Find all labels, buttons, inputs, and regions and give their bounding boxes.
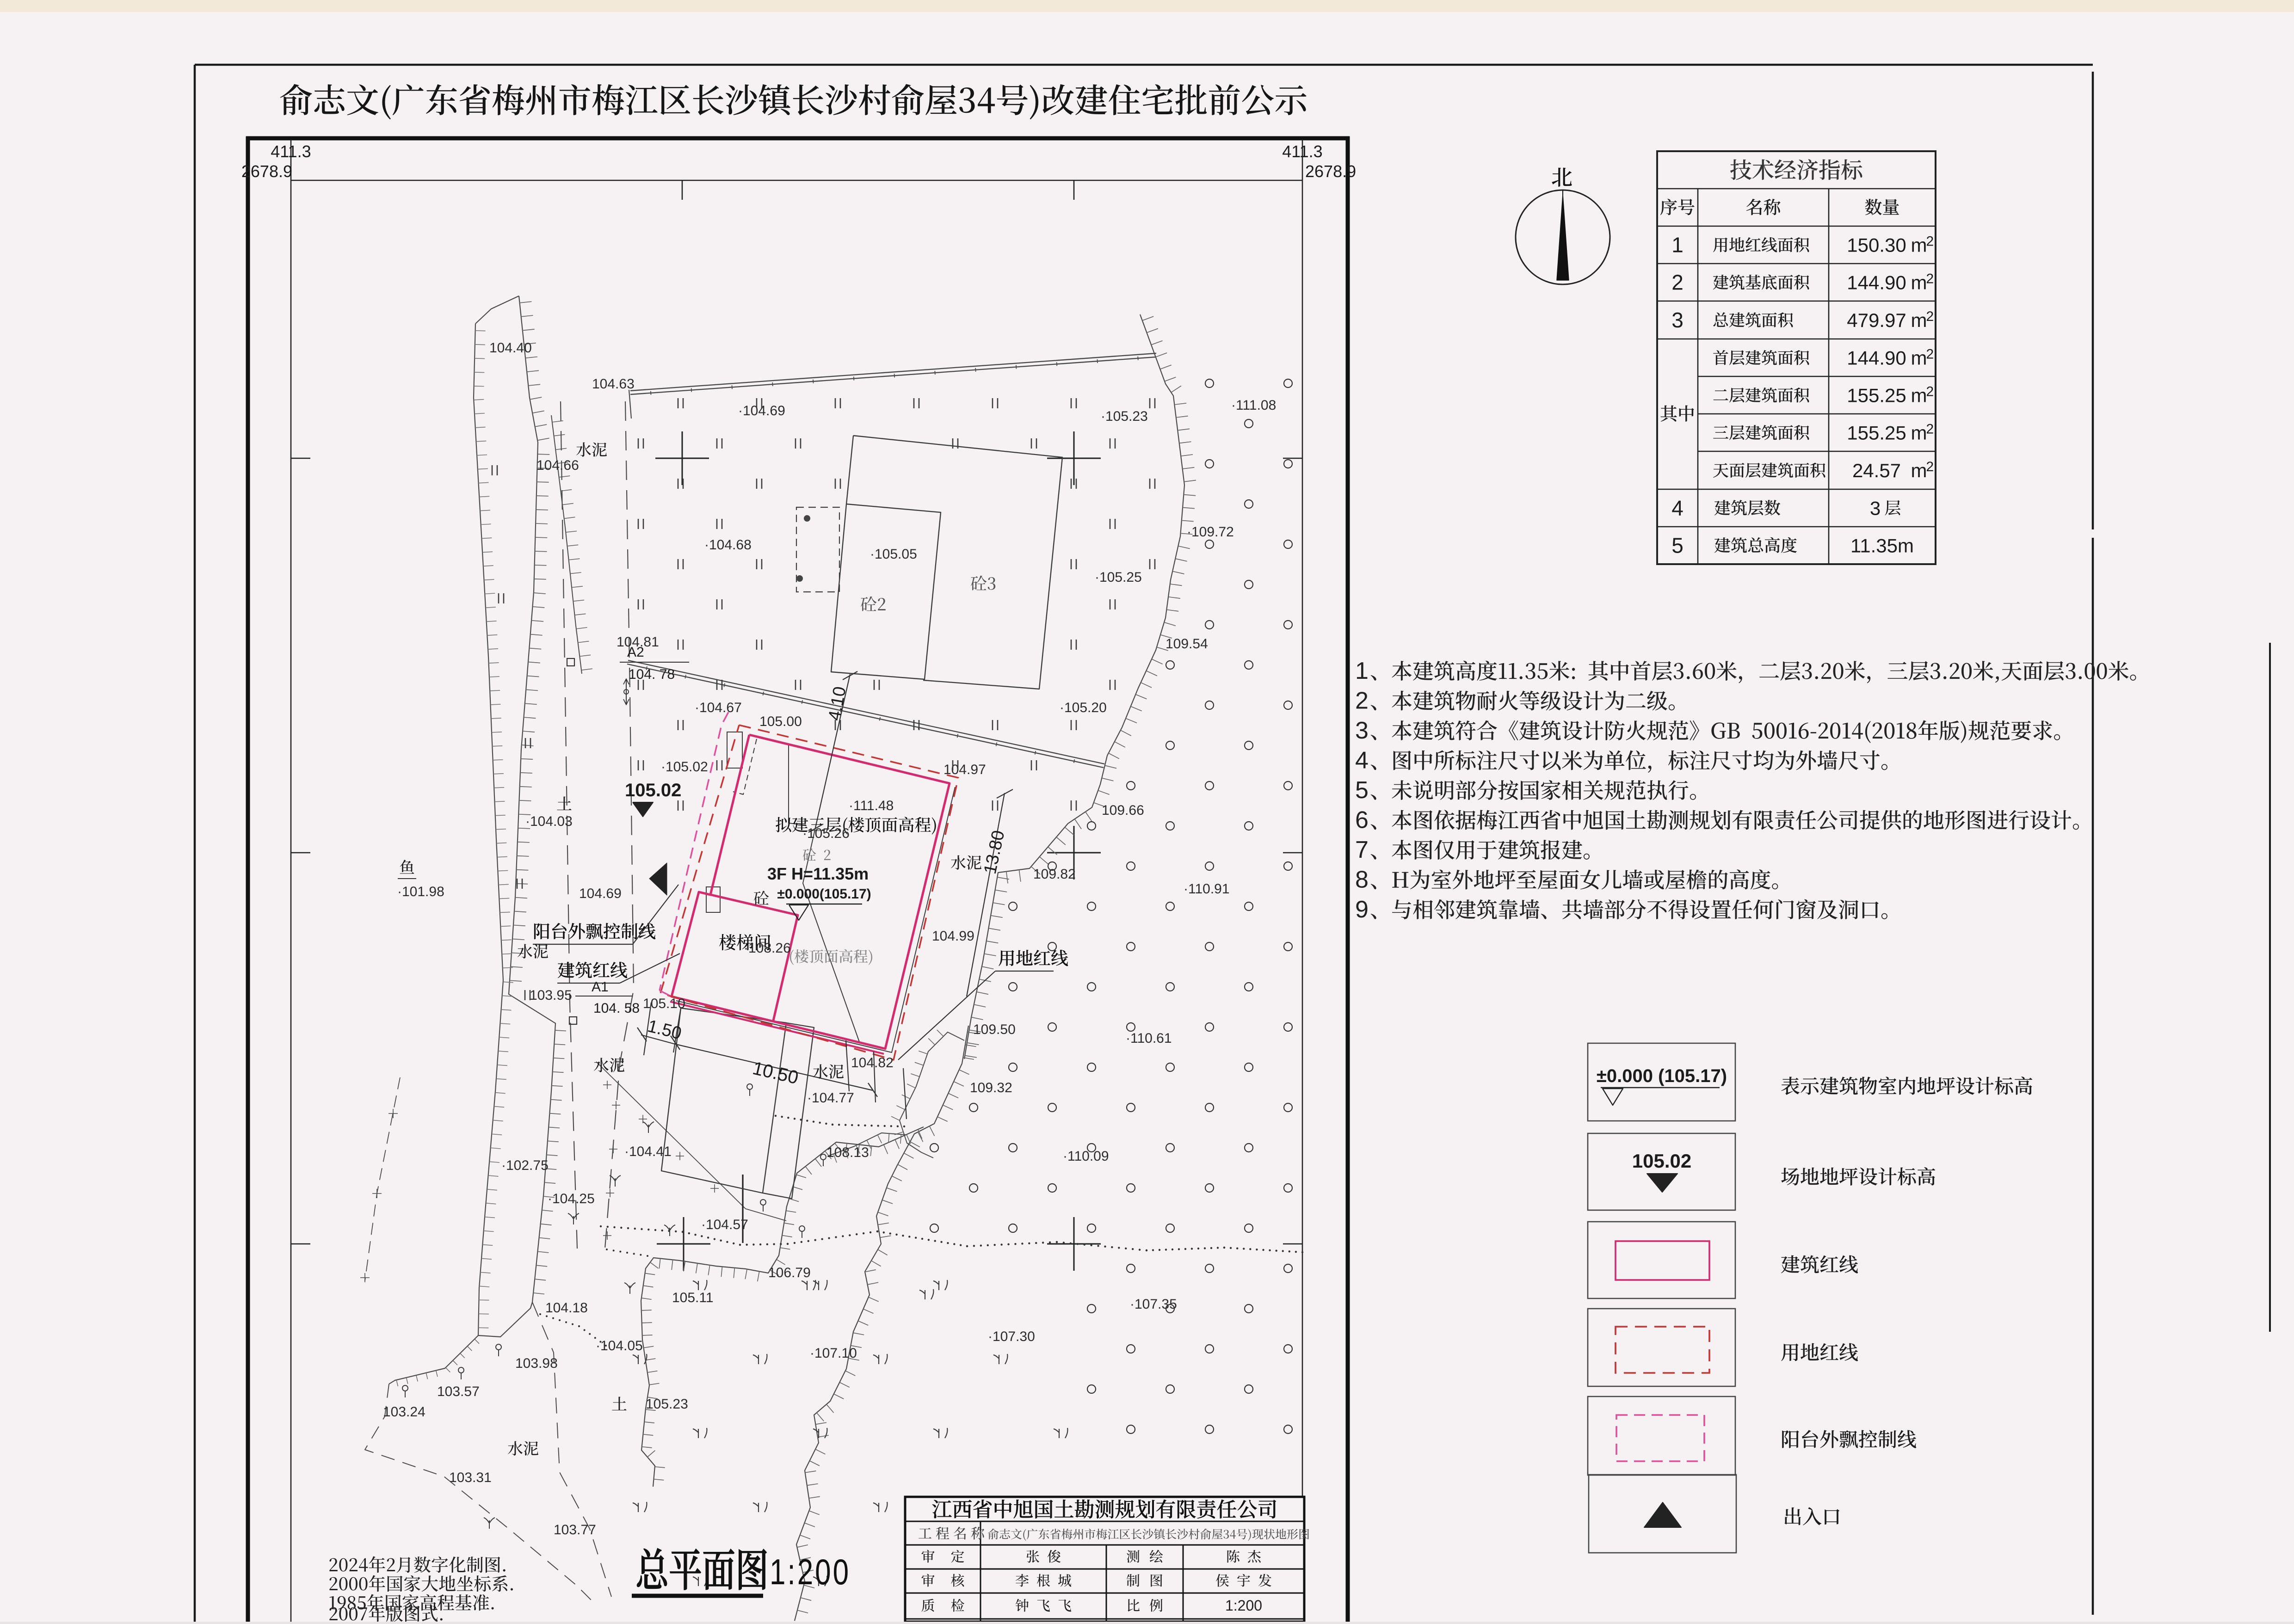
svg-text:105.11: 105.11 <box>672 1290 714 1305</box>
svg-text:±0.000(105.17): ±0.000(105.17) <box>777 886 871 902</box>
svg-text:2: 2 <box>1926 309 1934 324</box>
svg-text:·111.08: ·111.08 <box>1231 398 1276 413</box>
svg-text:m: m <box>1911 460 1927 481</box>
svg-text:105.02: 105.02 <box>625 780 681 800</box>
svg-text:2: 2 <box>1926 422 1934 437</box>
svg-text:m: m <box>1911 309 1927 331</box>
svg-text:·111.48: ·111.48 <box>849 798 894 813</box>
svg-text:105.00: 105.00 <box>759 714 802 729</box>
svg-text:5: 5 <box>1671 534 1683 558</box>
svg-text:·110.91: ·110.91 <box>1184 881 1230 897</box>
svg-text:2: 2 <box>1926 459 1934 474</box>
svg-text:·104.57: ·104.57 <box>701 1217 748 1232</box>
svg-text:105.23: 105.23 <box>646 1396 688 1412</box>
svg-text:144.90: 144.90 <box>1847 272 1906 294</box>
svg-text:·105.23: ·105.23 <box>1101 409 1148 424</box>
svg-text:·102.75: ·102.75 <box>501 1158 549 1173</box>
svg-text:103.31: 103.31 <box>449 1470 492 1485</box>
svg-text:1: 1 <box>1671 233 1683 257</box>
svg-text:150.30: 150.30 <box>1847 234 1906 256</box>
svg-text:·108.26: ·108.26 <box>744 941 791 956</box>
svg-text:155.25: 155.25 <box>1847 385 1906 406</box>
svg-text:·104.05: ·104.05 <box>596 1338 643 1353</box>
svg-text:5: 5 <box>1355 777 1369 804</box>
svg-text:·109.72: ·109.72 <box>1187 524 1234 540</box>
svg-text:1:200: 1:200 <box>1225 1597 1262 1614</box>
svg-text:104.82: 104.82 <box>851 1055 894 1070</box>
svg-text:109.54: 109.54 <box>1165 636 1208 652</box>
svg-text:103.98: 103.98 <box>515 1356 558 1371</box>
svg-text:144.90: 144.90 <box>1847 347 1906 369</box>
svg-text:103.95: 103.95 <box>530 988 572 1003</box>
svg-text:1: 1 <box>1355 658 1369 684</box>
svg-text:105.02: 105.02 <box>1632 1150 1691 1172</box>
svg-text:·104.25: ·104.25 <box>548 1191 595 1206</box>
svg-text:2: 2 <box>1671 271 1683 295</box>
svg-text:479.97: 479.97 <box>1847 309 1906 331</box>
svg-text:104.99: 104.99 <box>932 929 974 944</box>
svg-text:104.63: 104.63 <box>592 376 635 392</box>
svg-text:±0.000 (105.17): ±0.000 (105.17) <box>1597 1066 1727 1086</box>
svg-text:3: 3 <box>1870 498 1881 519</box>
svg-text:2: 2 <box>1926 234 1934 249</box>
svg-text:·105.26: ·105.26 <box>802 826 850 841</box>
svg-text:24.57: 24.57 <box>1852 460 1901 481</box>
svg-text:109.66: 109.66 <box>1102 803 1144 818</box>
svg-text:·107.30: ·107.30 <box>988 1329 1035 1344</box>
svg-text:2: 2 <box>1926 384 1934 400</box>
svg-text:106.79: 106.79 <box>768 1265 811 1280</box>
svg-text:11.35m: 11.35m <box>1850 535 1914 557</box>
svg-text:9: 9 <box>1355 896 1369 923</box>
svg-text:m: m <box>1911 347 1927 369</box>
svg-text:104. 78: 104. 78 <box>629 667 675 682</box>
svg-text:·101.98: ·101.98 <box>397 884 444 899</box>
svg-text:2: 2 <box>1926 347 1934 362</box>
svg-text:·110.09: ·110.09 <box>1063 1149 1109 1164</box>
svg-text:108.13: 108.13 <box>826 1145 869 1160</box>
svg-text:·104.67: ·104.67 <box>695 700 742 715</box>
svg-text:2: 2 <box>1926 271 1934 287</box>
svg-text:m: m <box>1911 385 1927 406</box>
svg-text:104. 58: 104. 58 <box>593 1001 640 1016</box>
svg-text:·105.25: ·105.25 <box>1095 570 1142 585</box>
svg-text:m: m <box>1911 422 1927 444</box>
svg-text:411.3: 411.3 <box>1282 142 1322 161</box>
svg-text:m: m <box>1911 234 1927 256</box>
svg-text:411.3: 411.3 <box>271 142 311 161</box>
svg-text:103.57: 103.57 <box>437 1384 480 1399</box>
svg-text:6: 6 <box>1355 807 1369 834</box>
svg-text:·105.02: ·105.02 <box>661 759 708 775</box>
svg-text:7: 7 <box>1355 837 1369 863</box>
svg-text:8: 8 <box>1355 867 1369 893</box>
svg-text:2678.9: 2678.9 <box>241 162 292 181</box>
svg-text:4: 4 <box>1355 747 1369 774</box>
svg-text:·107.10: ·107.10 <box>810 1346 857 1361</box>
svg-text:2: 2 <box>1355 688 1369 714</box>
svg-text:104.81: 104.81 <box>617 634 659 650</box>
svg-text:·104.03: ·104.03 <box>525 814 573 829</box>
svg-text:·104.77: ·104.77 <box>807 1090 854 1106</box>
svg-text:105.10: 105.10 <box>643 996 685 1011</box>
svg-text:104.18: 104.18 <box>545 1300 588 1316</box>
svg-text:m: m <box>1911 272 1927 294</box>
svg-text:A1: A1 <box>592 979 609 995</box>
svg-text:103.77: 103.77 <box>554 1522 596 1538</box>
svg-text:104.97: 104.97 <box>943 762 986 777</box>
svg-text:3F H=11.35m: 3F H=11.35m <box>767 864 869 883</box>
svg-text:·104.68: ·104.68 <box>704 537 752 553</box>
svg-text:109.32: 109.32 <box>970 1080 1012 1095</box>
svg-text:3: 3 <box>1671 308 1683 332</box>
svg-text:104.66: 104.66 <box>536 458 579 473</box>
svg-text:3: 3 <box>1355 717 1369 744</box>
svg-text:104.40: 104.40 <box>489 340 532 356</box>
svg-text:·105.20: ·105.20 <box>1060 700 1107 715</box>
svg-text:109.82: 109.82 <box>1033 867 1076 882</box>
svg-text:2678.9: 2678.9 <box>1305 162 1356 181</box>
svg-text:1:200: 1:200 <box>770 1551 851 1592</box>
svg-text:4: 4 <box>1671 496 1683 520</box>
svg-text:104.69: 104.69 <box>579 886 622 901</box>
svg-text:·110.61: ·110.61 <box>1126 1031 1172 1046</box>
svg-text:155.25: 155.25 <box>1847 422 1906 444</box>
svg-text:·105.05: ·105.05 <box>870 547 917 562</box>
svg-text:109.50: 109.50 <box>973 1022 1016 1037</box>
svg-text:103.24: 103.24 <box>383 1404 425 1420</box>
svg-text:·104.41: ·104.41 <box>624 1144 672 1159</box>
